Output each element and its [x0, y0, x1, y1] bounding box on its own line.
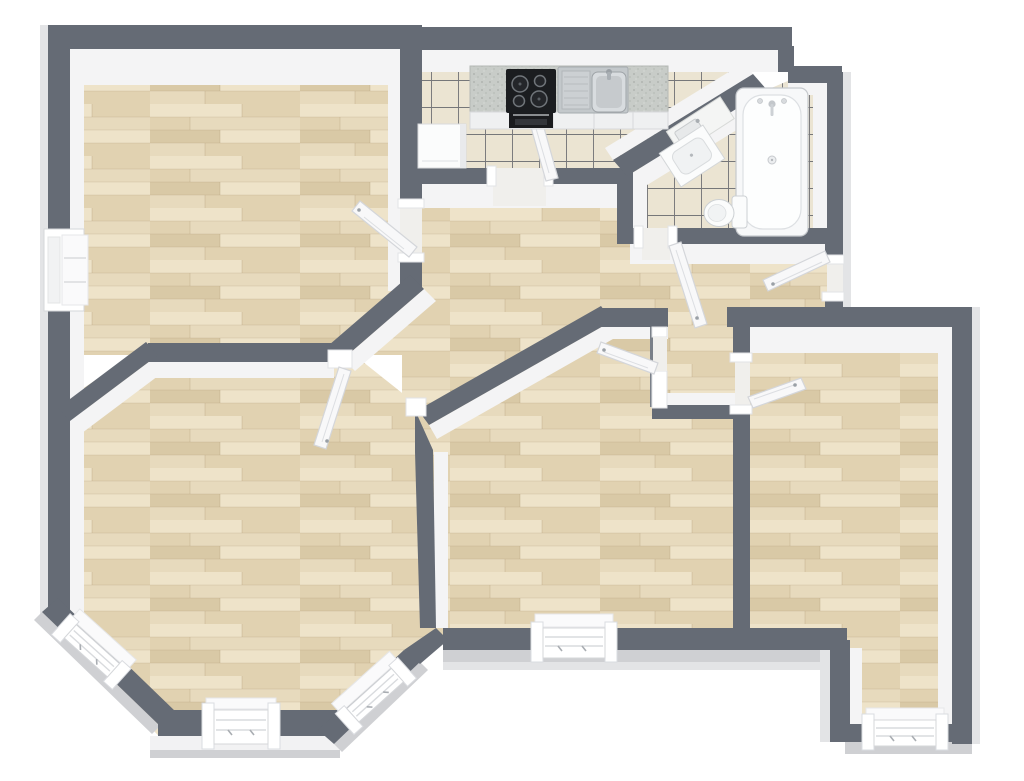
kitchen-sink: Kitchen sink with drainboard: [558, 67, 628, 113]
jamb-middle-n: [652, 327, 667, 337]
outer-edge-bay-south: [150, 750, 340, 758]
wall-right-north: [727, 307, 972, 327]
cooktop: Cooktop with 4 burners: [506, 69, 556, 113]
window-bay-south: [202, 698, 280, 749]
threshold-right: [735, 362, 750, 406]
wall-west: [48, 25, 70, 618]
window-living-west: [44, 229, 88, 311]
room-top-left-floor: [66, 45, 404, 355]
face-right-north: [733, 327, 954, 353]
jamb-bl-w: [328, 350, 352, 368]
jamb-bl-e: [406, 398, 426, 416]
jamb-kitchen-w: [487, 166, 496, 186]
window-right-south: [862, 708, 948, 750]
jamb-living-n: [398, 199, 424, 208]
wall-living-north: [50, 25, 422, 49]
wall-bl-top: [148, 343, 334, 362]
face-bath-east: [813, 88, 827, 244]
wall-hall-north: [600, 308, 668, 327]
wall-bay-south-a: [158, 710, 204, 736]
threshold-entry: [827, 264, 843, 293]
threshold-kitchen: [493, 168, 546, 206]
outer-edge-notch: [820, 650, 830, 742]
wall-right-east: [952, 307, 972, 744]
wall-middle-south-b: [613, 628, 847, 650]
wall-right-west: [733, 410, 750, 628]
face-west: [70, 85, 84, 615]
face-right-east: [938, 327, 952, 727]
wall-bath-east: [827, 72, 843, 244]
wall-notch-west: [830, 640, 850, 742]
face-bl-top: [150, 362, 334, 378]
threshold-bath: [642, 228, 670, 260]
outer-edge-middle-south-2: [443, 662, 847, 670]
oven: Oven: [509, 112, 553, 128]
jamb-entry-s: [822, 292, 844, 301]
jamb-right-s: [730, 405, 752, 414]
wall-kitchen-north: [415, 27, 792, 50]
face-interroom-east: [434, 452, 448, 628]
room-top-left: Room (top left): [66, 45, 404, 355]
outer-edge-bath-east: [843, 72, 851, 310]
outer-edge-east: [972, 307, 980, 744]
wall-kitchen-south-a: [400, 168, 495, 184]
outer-edge-middle-south: [443, 650, 847, 662]
wall-middle-south-a: [443, 628, 535, 650]
floor-plan-image: Room (top left) Hallway Room (bottom lef…: [0, 0, 1024, 781]
refrigerator: Refrigerator cabinet: [418, 124, 466, 168]
jamb-right-n: [730, 353, 752, 362]
floor-plan-svg: Room (top left) Hallway Room (bottom lef…: [0, 0, 1024, 781]
face-living-north: [66, 47, 404, 85]
jamb-bath-w: [634, 226, 643, 248]
jamb-middle-s: [652, 371, 667, 408]
window-middle-south: [531, 614, 617, 662]
face-notch: [850, 648, 862, 724]
